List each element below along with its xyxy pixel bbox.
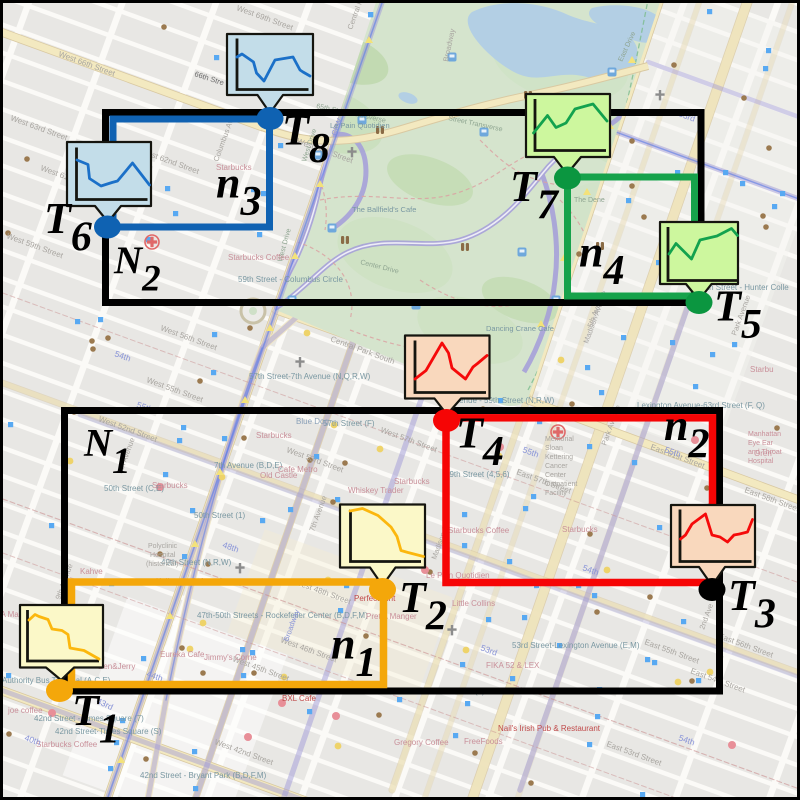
- svg-text:Le Pain Quotidien: Le Pain Quotidien: [330, 121, 390, 130]
- svg-text:50th Street (1): 50th Street (1): [194, 511, 245, 520]
- svg-text:Nail's Irish Pub & Restaurant: Nail's Irish Pub & Restaurant: [498, 724, 601, 733]
- svg-text:Dancing Crane Cafe: Dancing Crane Cafe: [486, 324, 554, 333]
- svg-text:Facility: Facility: [545, 490, 567, 497]
- svg-text:The Ballfield's Cafe: The Ballfield's Cafe: [352, 205, 416, 214]
- svg-text:Cafe Metro: Cafe Metro: [278, 465, 318, 474]
- svg-text:Hospital: Hospital: [150, 552, 176, 559]
- svg-text:and Throat: and Throat: [748, 449, 782, 456]
- svg-text:FIKA 52 & LEX: FIKA 52 & LEX: [486, 661, 540, 670]
- svg-text:57th Street (F): 57th Street (F): [323, 419, 375, 428]
- svg-text:Le Pain Quotidien: Le Pain Quotidien: [426, 571, 490, 580]
- svg-text:Hospital: Hospital: [748, 458, 774, 465]
- svg-text:Starbucks Coffee: Starbucks Coffee: [228, 253, 290, 262]
- svg-text:Starbucks: Starbucks: [152, 481, 188, 490]
- svg-text:57th Street-7th Avenue (N,Q,R,: 57th Street-7th Avenue (N,Q,R,W): [249, 372, 371, 381]
- svg-text:Starbucks: Starbucks: [394, 477, 430, 486]
- svg-text:Outpatient: Outpatient: [545, 481, 577, 488]
- svg-text:Kahve: Kahve: [80, 567, 103, 576]
- svg-text:Starbucks: Starbucks: [562, 525, 598, 534]
- svg-text:joe coffee: joe coffee: [7, 706, 43, 715]
- svg-text:7th Avenue (B,D,E): 7th Avenue (B,D,E): [214, 461, 283, 470]
- svg-text:Jimmy's Corne: Jimmy's Corne: [204, 653, 257, 662]
- svg-text:Gregory Coffee: Gregory Coffee: [394, 738, 449, 747]
- svg-text:BXL Cafe: BXL Cafe: [282, 694, 316, 703]
- svg-text:Eye Ear: Eye Ear: [748, 440, 774, 447]
- svg-text:Eureka Cafe: Eureka Cafe: [160, 650, 205, 659]
- svg-text:Sloan: Sloan: [545, 445, 563, 452]
- svg-text:Blue Dog: Blue Dog: [296, 417, 329, 426]
- svg-text:(historical): (historical): [146, 561, 178, 568]
- svg-text:Kettering: Kettering: [545, 454, 573, 461]
- svg-text:Cancer: Cancer: [545, 463, 568, 470]
- svg-text:Manhattan: Manhattan: [748, 431, 781, 438]
- svg-text:FreeFoods: FreeFoods: [464, 737, 503, 746]
- svg-text:53rd Street-Lexington Avenue (: 53rd Street-Lexington Avenue (E,M): [512, 641, 640, 650]
- svg-text:Center: Center: [545, 472, 567, 479]
- svg-text:Little Collins: Little Collins: [452, 599, 495, 608]
- svg-text:Starbucks Coffee: Starbucks Coffee: [36, 740, 98, 749]
- svg-text:42nd Street - Bryant Park (B,D: 42nd Street - Bryant Park (B,D,F,M): [140, 771, 267, 780]
- svg-text:Starbu: Starbu: [750, 365, 774, 374]
- svg-text:The Dene: The Dene: [574, 197, 605, 204]
- svg-text:Whiskey Trader: Whiskey Trader: [348, 486, 404, 495]
- svg-text:59th Street - Columbus Circle: 59th Street - Columbus Circle: [238, 275, 343, 284]
- svg-text:Starbucks: Starbucks: [256, 431, 292, 440]
- svg-text:Memorial: Memorial: [545, 436, 574, 443]
- svg-text:Starbucks Coffee: Starbucks Coffee: [448, 526, 510, 535]
- svg-text:Polyclinic: Polyclinic: [148, 543, 178, 550]
